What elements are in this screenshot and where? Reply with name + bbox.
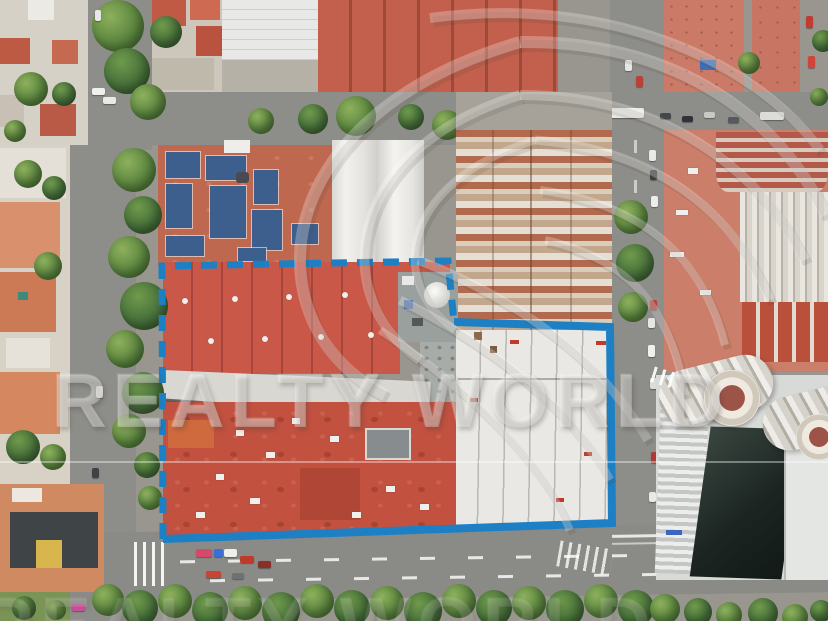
skylight-dot <box>232 296 238 302</box>
machinery-box <box>412 318 423 326</box>
red-mark <box>596 341 606 345</box>
machinery-box <box>474 332 482 340</box>
skylight-dot <box>262 336 268 342</box>
tree <box>42 176 66 200</box>
tree <box>618 292 648 322</box>
rooftop-unit <box>216 474 224 480</box>
skylight-dot <box>182 298 188 304</box>
tarp-blue <box>700 60 716 70</box>
tree <box>298 104 328 134</box>
tree <box>738 52 760 74</box>
truck <box>214 549 223 557</box>
solar-panel-array <box>166 184 192 228</box>
rooftop-vent <box>236 172 249 183</box>
roof-seam <box>570 130 572 330</box>
skylight <box>224 140 250 153</box>
car <box>649 492 656 502</box>
car <box>808 56 815 68</box>
rooftop-unit <box>700 290 711 295</box>
roof-barrel-white-striped <box>740 192 828 302</box>
tree <box>40 444 66 470</box>
tree <box>14 72 48 106</box>
rooftop-unit <box>196 512 205 518</box>
skylight-dot <box>286 294 292 300</box>
tree <box>616 244 654 282</box>
car <box>92 468 99 478</box>
red-mark <box>584 452 592 456</box>
roof <box>52 40 78 64</box>
roof <box>190 0 220 20</box>
roof-seam <box>492 130 494 330</box>
car <box>92 88 105 95</box>
roof <box>196 26 222 56</box>
rooftop-unit <box>676 210 688 215</box>
aerial-photo: REALTY WORLD REALTY WORLD <box>0 0 828 621</box>
car <box>806 16 813 28</box>
car <box>95 10 101 21</box>
skylight-dot <box>342 292 348 298</box>
roof <box>152 58 214 90</box>
solar-panel-array <box>252 210 282 250</box>
warehouse-red-corrugated <box>318 0 558 92</box>
tree <box>6 430 40 464</box>
car <box>648 318 655 328</box>
tree <box>130 84 166 120</box>
yard-gravel <box>456 92 612 132</box>
car <box>650 300 657 310</box>
roof <box>28 0 54 20</box>
roof <box>12 488 42 502</box>
roof-barrel-white <box>332 140 378 266</box>
car <box>196 549 212 557</box>
roof-orange <box>0 372 60 434</box>
car <box>648 345 655 357</box>
car <box>649 150 656 161</box>
rooftop-unit <box>670 252 684 257</box>
building-sign-blue <box>666 530 682 535</box>
roof-seam <box>530 130 532 330</box>
skylight-dot <box>368 332 374 338</box>
car <box>206 571 221 578</box>
tree <box>398 104 424 130</box>
solar-panel-array <box>254 170 278 204</box>
solar-panel-array <box>166 152 200 178</box>
tree <box>4 120 26 142</box>
solar-panel-array <box>292 224 318 244</box>
storage-tank <box>424 282 450 308</box>
tree <box>108 236 150 278</box>
roof-red-containers <box>742 302 828 362</box>
tree <box>782 604 808 621</box>
truck <box>224 549 237 557</box>
tree <box>14 160 42 188</box>
tree <box>336 96 376 136</box>
rooftop-unit <box>250 498 260 504</box>
warehouse-rusty-striped <box>456 130 612 330</box>
watermark-title: REALTY WORLD <box>52 358 729 445</box>
car <box>103 97 116 104</box>
tree <box>716 602 742 621</box>
tree <box>52 82 76 106</box>
bus <box>760 112 784 120</box>
tree <box>810 88 828 106</box>
car <box>728 117 739 123</box>
tree <box>134 452 160 478</box>
rooftop-unit <box>688 168 698 174</box>
accent-teal <box>18 292 28 300</box>
machinery-box <box>490 346 497 353</box>
machinery-box <box>404 300 413 309</box>
solar-panel-array <box>238 248 266 261</box>
tree <box>92 0 144 52</box>
solar-panel-array <box>166 236 204 256</box>
car <box>704 112 715 118</box>
roof <box>0 38 30 64</box>
tree <box>120 282 168 330</box>
tree <box>124 196 162 234</box>
tree <box>138 486 162 510</box>
machinery-box <box>402 276 414 285</box>
car <box>660 113 671 119</box>
roof-salmon <box>664 0 744 92</box>
car <box>682 116 693 122</box>
solar-panel-array <box>210 186 246 238</box>
watermark-title-partial: REALTY WORLD <box>0 582 657 621</box>
tree <box>810 600 828 621</box>
rooftop-unit <box>420 504 429 510</box>
skylight-dot <box>318 334 324 340</box>
wall-yellow <box>36 540 62 568</box>
car <box>636 76 643 87</box>
yard <box>222 60 318 92</box>
tree <box>748 598 778 621</box>
car <box>650 170 657 180</box>
car <box>232 573 244 579</box>
building-white-lined <box>222 0 318 60</box>
roof-barrel-white <box>378 140 424 266</box>
roof-dark-red <box>300 468 360 520</box>
tree <box>614 200 648 234</box>
crosswalk <box>134 542 170 586</box>
rooftop-unit <box>386 486 395 492</box>
red-mark <box>510 340 519 344</box>
car <box>258 561 271 568</box>
roof <box>40 104 76 136</box>
tree <box>248 108 274 134</box>
car <box>240 556 254 563</box>
rooftop-unit <box>266 452 275 458</box>
tree <box>150 16 182 48</box>
car <box>625 60 632 71</box>
roof <box>6 338 50 368</box>
skylight-dot <box>208 338 214 344</box>
roof-barrel-red-striped <box>716 132 828 192</box>
red-mark <box>556 498 564 502</box>
watermark-rule-line <box>0 461 828 463</box>
car <box>651 196 658 207</box>
roof-orange <box>0 272 56 332</box>
rooftop-unit <box>352 512 361 518</box>
tree <box>112 148 156 192</box>
tree <box>684 598 712 621</box>
roof-salmon <box>752 0 800 92</box>
tree <box>812 30 828 52</box>
tree <box>34 252 62 280</box>
